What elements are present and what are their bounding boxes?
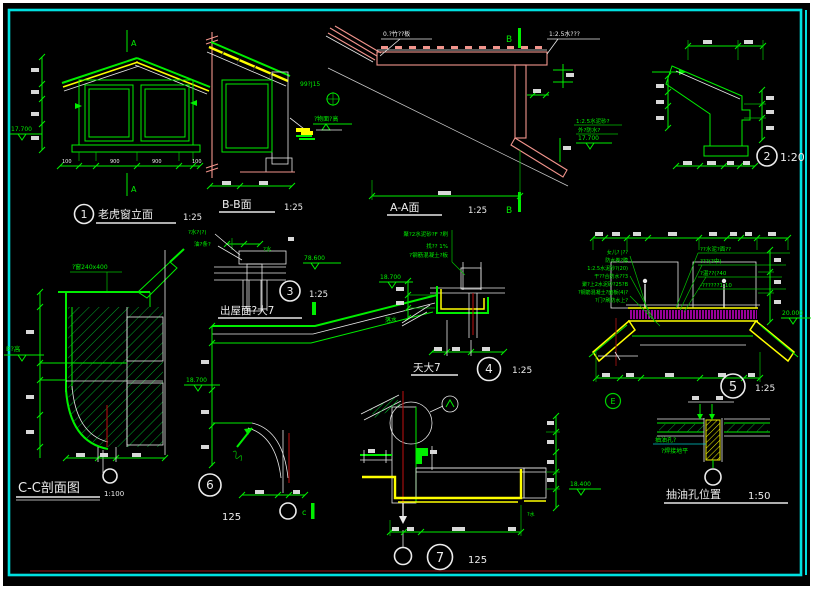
level-value: 18.700 — [380, 274, 401, 281]
view-scale: 1:20 — [780, 151, 805, 164]
note-window: ?窗240x400 — [72, 263, 108, 271]
note-felt-strip: 油?条? — [194, 240, 211, 248]
note-flashing: ?水?(?) — [188, 228, 207, 236]
note-level: ?物面?高 — [314, 115, 338, 123]
note: ???(?中) — [700, 257, 721, 265]
view-scale: 1:25 — [309, 290, 328, 300]
note-mortar: 1:2.5水??? — [549, 30, 580, 38]
note: ??水泥?面?? — [700, 245, 731, 253]
note-slab: ?钢筋混凝土?板 — [409, 251, 448, 259]
detail-number: 2 — [764, 150, 771, 163]
note: 聚?上2水泥砂?25?B — [582, 281, 629, 288]
grid-marker: E — [610, 397, 615, 406]
view-title: 老虎窗立面 — [98, 207, 153, 221]
view-scale: 1:25 — [183, 213, 202, 223]
section-marker-b-bottom: B — [506, 206, 512, 216]
note-slope: 找?? 1% — [426, 242, 448, 250]
note-board: 0.?竹??板 — [383, 30, 410, 38]
note: ?门?刷防水上? — [595, 297, 628, 304]
view-scale: 1:25 — [755, 384, 775, 394]
view-scale: 1:25 — [284, 203, 303, 213]
level-value: 18.400 — [570, 481, 591, 488]
detail-number: 7 — [436, 551, 444, 566]
level-value: 18.700 — [186, 377, 207, 384]
view-scale: 125 — [468, 555, 487, 566]
cad-drawing-sheet: A A 100 900 900 100 17.700 1 老虎窗立面 1:25 … — [0, 0, 813, 589]
dim-text: 100 — [192, 159, 202, 165]
view-scale: 1:50 — [748, 491, 770, 502]
note: ?温??(?40 — [700, 269, 727, 277]
note: -??????1:10 — [700, 283, 732, 289]
level-value: 17.700 — [578, 135, 599, 142]
note: ?钢筋混凝土?面板(4)? — [578, 289, 628, 296]
cad-canvas: A A 100 900 900 100 17.700 1 老虎窗立面 1:25 … — [0, 0, 813, 589]
note-b-height: B?高 — [6, 344, 21, 353]
note-splash: ?水 — [527, 511, 535, 518]
view-title: 天大7 — [413, 361, 441, 374]
oil-hole-column-hatch — [706, 420, 720, 460]
note-water: ?水 — [263, 245, 272, 253]
level-value: 17.700 — [11, 126, 32, 133]
detail-number: 5 — [729, 380, 737, 395]
note-waterproof: 外?防水? — [578, 126, 600, 134]
section-marker-a-bottom: A — [131, 185, 137, 194]
note: 干??合防水??3 — [594, 273, 628, 280]
note-mortar: 1:2.5水泥砂? — [576, 117, 610, 125]
note-downpipe: 落水 — [385, 316, 397, 324]
view-title: 抽油孔位置 — [666, 487, 721, 501]
section-marker-b-top: B — [506, 35, 512, 45]
note: 女儿? |?? — [607, 249, 629, 256]
wall-mass-hatch — [68, 307, 163, 447]
note-oil-hole: 抽油孔? — [655, 436, 676, 444]
view-scale: 125 — [222, 512, 241, 523]
note: 1:2.5水泥砂?(20) — [587, 265, 628, 272]
note-plate: 99?J15 — [300, 81, 320, 88]
dim-text: 100 — [62, 159, 72, 165]
dim-text: 900 — [110, 159, 120, 165]
view-title: B-B面 — [222, 198, 252, 211]
section-marker-a-top: A — [131, 39, 137, 48]
view-scale: 1:100 — [104, 490, 124, 498]
level-value: 20.000 — [782, 310, 803, 317]
detail-number: 4 — [485, 362, 493, 376]
section-marker-c: c — [302, 508, 306, 517]
level-value: 78.600 — [304, 255, 325, 262]
detail-number: 1 — [81, 208, 88, 221]
detail-number: 6 — [206, 478, 214, 492]
view-title: 出屋面?大7 — [220, 304, 274, 317]
view-scale: 1:25 — [512, 366, 532, 376]
note-mortar: 聚?2水泥砂?F ?刷 — [403, 230, 448, 238]
detail-number: 3 — [287, 285, 294, 298]
view-title: C-C剖面图 — [18, 481, 80, 496]
note: 防水卷?膜 — [605, 257, 628, 264]
dim-text: 900 — [152, 159, 162, 165]
note-ground: ?焊接地平 — [661, 447, 688, 455]
view-title: A-A面 — [390, 201, 420, 214]
view-scale: 1:25 — [468, 206, 487, 216]
